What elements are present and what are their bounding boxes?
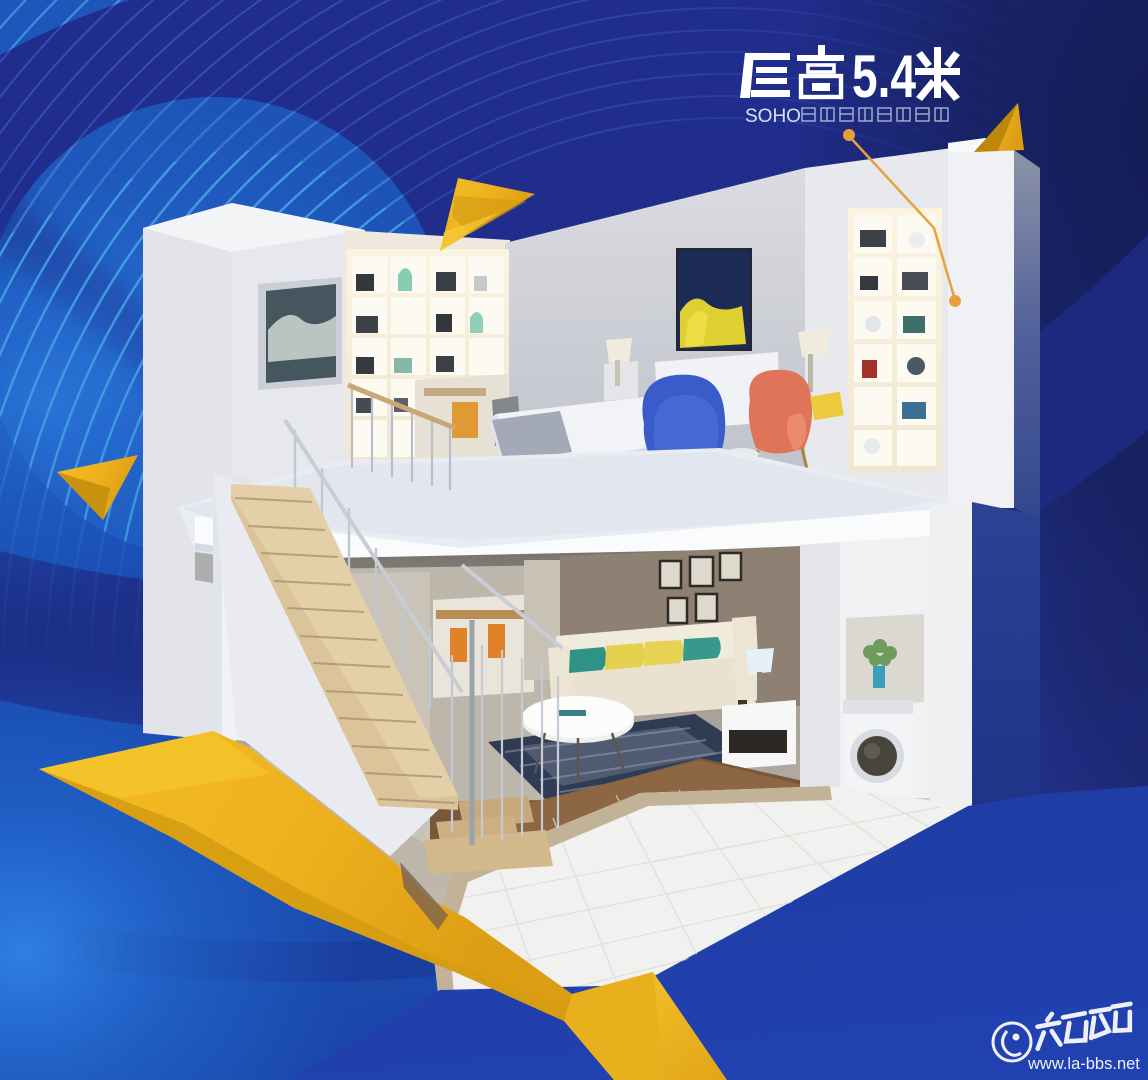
svg-text:SOHO: SOHO — [745, 106, 801, 127]
svg-text:www.la-bbs.net: www.la-bbs.net — [1027, 1055, 1140, 1073]
svg-text:5.4: 5.4 — [852, 43, 916, 110]
